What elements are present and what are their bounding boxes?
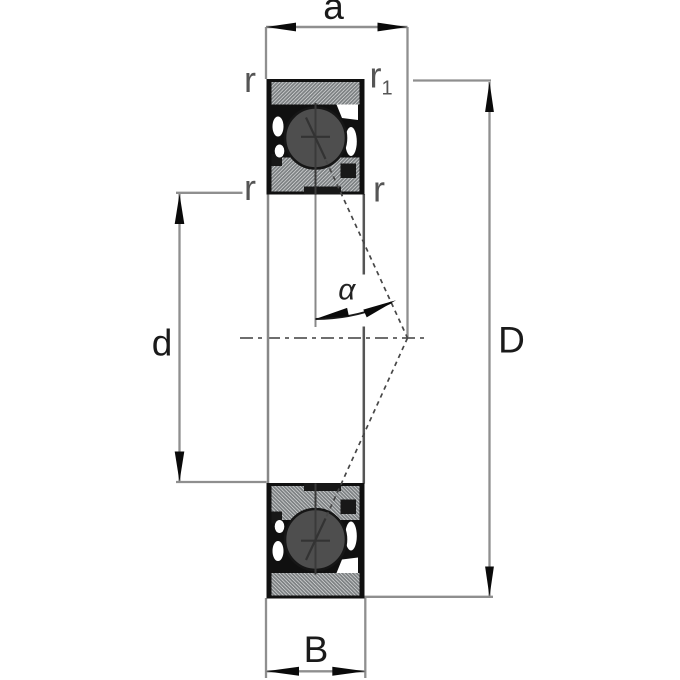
svg-text:r: r	[244, 167, 256, 208]
svg-text:α: α	[338, 274, 356, 307]
svg-text:r: r	[373, 169, 385, 210]
svg-text:r: r	[244, 59, 256, 100]
svg-text:a: a	[323, 0, 344, 27]
svg-text:B: B	[304, 629, 329, 670]
svg-text:d: d	[152, 323, 173, 364]
svg-text:D: D	[498, 320, 525, 361]
